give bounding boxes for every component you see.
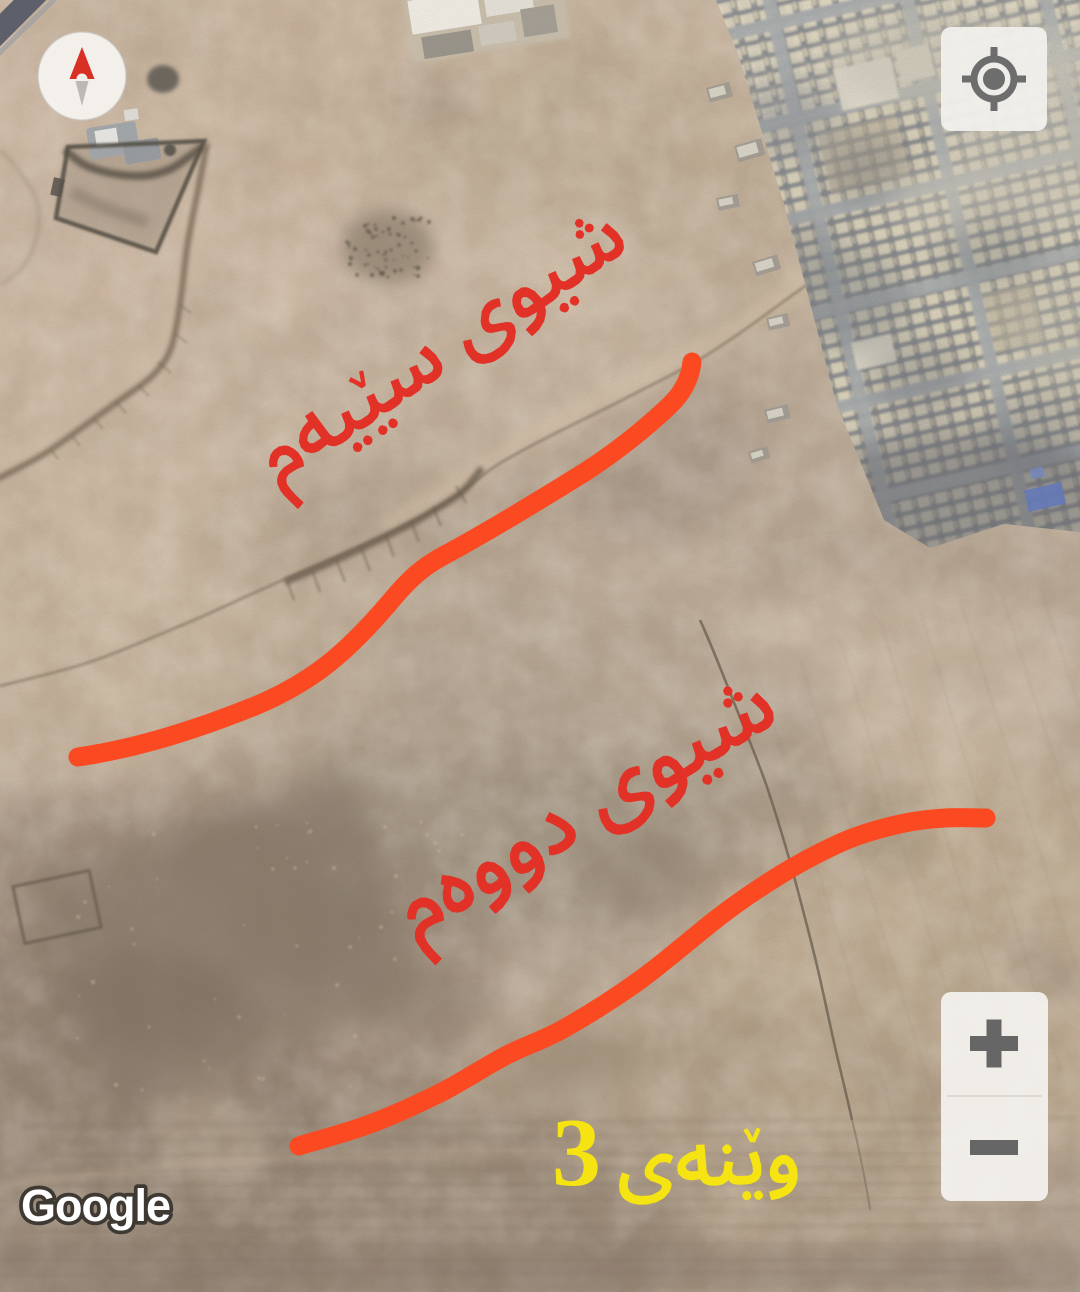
svg-text:Google: Google: [21, 1180, 170, 1231]
svg-text:3: 3: [552, 1099, 601, 1207]
